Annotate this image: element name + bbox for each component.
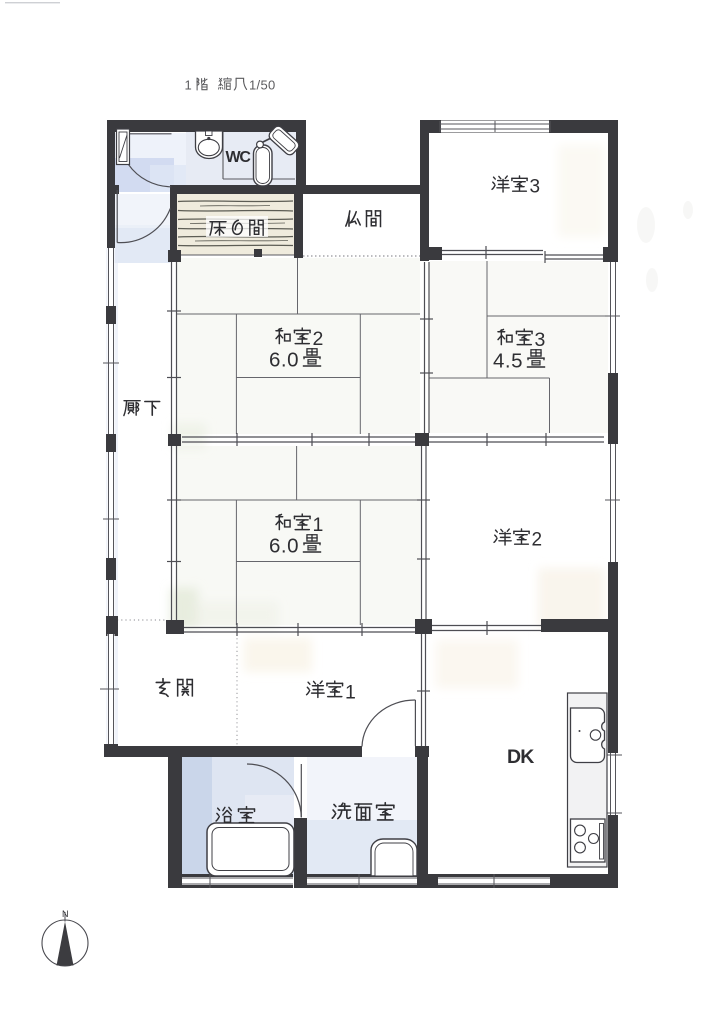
- svg-text:1/50: 1/50: [249, 78, 276, 93]
- svg-text:WC: WC: [226, 149, 252, 166]
- svg-text:1: 1: [345, 682, 356, 704]
- svg-text:6.0: 6.0: [269, 349, 299, 372]
- svg-text:6.0: 6.0: [269, 535, 299, 558]
- svg-text:1: 1: [185, 78, 192, 93]
- svg-text:N: N: [62, 909, 69, 919]
- svg-text:4.5: 4.5: [493, 350, 523, 373]
- svg-text:3: 3: [530, 177, 541, 198]
- svg-text:2: 2: [532, 530, 543, 551]
- svg-text:DK: DK: [507, 746, 534, 768]
- svg-text:2: 2: [313, 328, 324, 350]
- svg-text:3: 3: [535, 329, 546, 351]
- svg-text:1: 1: [313, 514, 324, 536]
